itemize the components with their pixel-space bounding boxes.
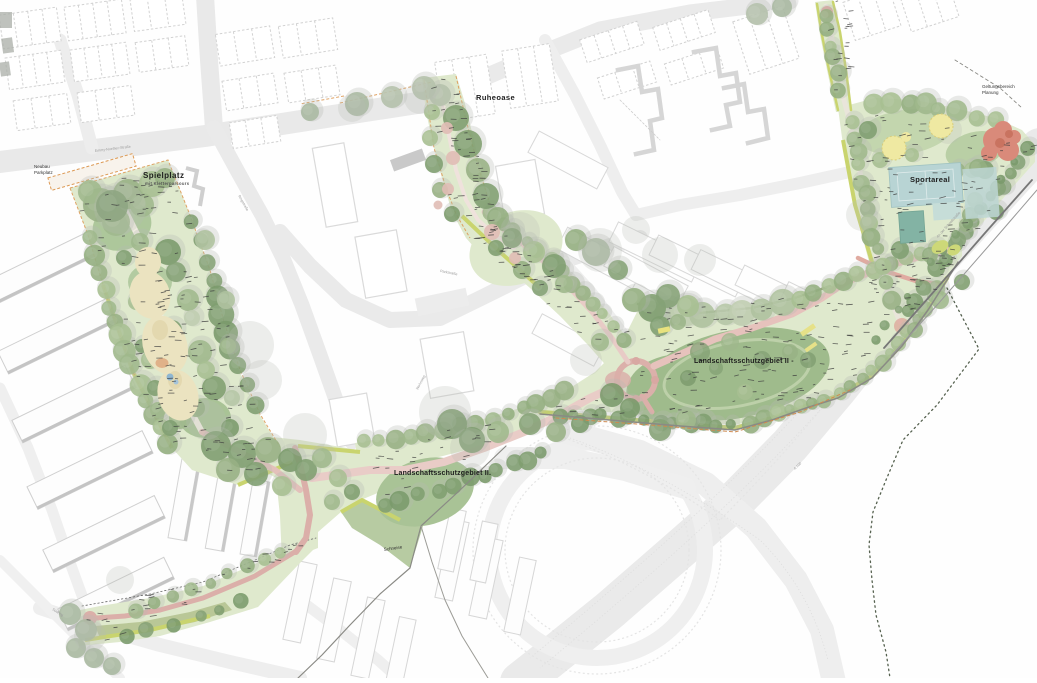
svg-text:Landschaftsschutzgebiet II -: Landschaftsschutzgebiet II - [694,358,794,365]
svg-text:Ruheoase: Ruheoase [476,93,515,102]
svg-text:Neubau: Neubau [34,164,50,169]
svg-text:Planung: Planung [982,90,999,95]
svg-text:Geltungsbereich: Geltungsbereich [982,84,1015,89]
svg-text:Parkplatz: Parkplatz [34,170,54,175]
svg-text:mit Kletterparcours: mit Kletterparcours [145,181,190,186]
svg-text:Sportareal: Sportareal [910,175,950,184]
svg-text:Spielplatz: Spielplatz [143,171,184,180]
svg-text:Landschaftsschutzgebiet II.: Landschaftsschutzgebiet II. [394,470,491,477]
